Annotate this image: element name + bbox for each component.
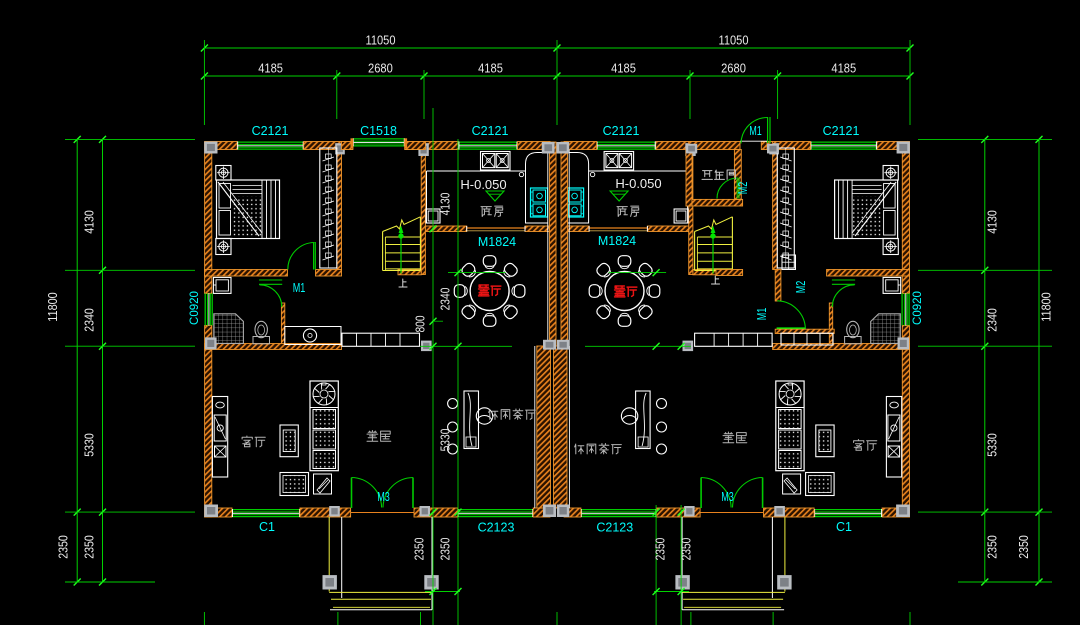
- svg-text:C1: C1: [836, 520, 852, 534]
- svg-text:2340: 2340: [985, 308, 1000, 332]
- svg-text:C2123: C2123: [596, 521, 633, 535]
- svg-text:C2121: C2121: [472, 124, 509, 138]
- svg-text:2350: 2350: [680, 538, 694, 561]
- svg-text:4185: 4185: [611, 61, 636, 76]
- svg-text:M1: M1: [749, 124, 762, 138]
- svg-text:4130: 4130: [985, 210, 1000, 234]
- svg-text:C2121: C2121: [252, 124, 289, 138]
- svg-text:M1: M1: [293, 281, 306, 295]
- svg-text:2680: 2680: [721, 61, 746, 76]
- svg-text:2350: 2350: [56, 535, 71, 559]
- svg-text:H-0.050: H-0.050: [615, 176, 661, 191]
- svg-text:M2: M2: [736, 182, 750, 195]
- svg-text:M1824: M1824: [478, 235, 516, 249]
- svg-text:11050: 11050: [719, 33, 749, 48]
- svg-text:C2123: C2123: [478, 521, 515, 535]
- svg-text:2350: 2350: [654, 538, 668, 561]
- svg-text:2350: 2350: [1016, 535, 1031, 559]
- svg-text:M3: M3: [377, 490, 390, 504]
- svg-text:C2121: C2121: [823, 124, 860, 138]
- svg-text:4130: 4130: [439, 193, 453, 216]
- svg-text:800: 800: [414, 315, 428, 332]
- svg-text:5330: 5330: [82, 433, 97, 457]
- svg-text:2350: 2350: [82, 535, 97, 559]
- svg-text:5330: 5330: [439, 429, 453, 452]
- svg-text:2340: 2340: [82, 308, 97, 332]
- svg-text:11800: 11800: [45, 292, 60, 322]
- svg-text:11050: 11050: [366, 33, 396, 48]
- svg-text:4130: 4130: [82, 210, 97, 234]
- svg-text:M3: M3: [721, 490, 734, 504]
- svg-text:4185: 4185: [258, 61, 283, 76]
- svg-text:2350: 2350: [985, 535, 1000, 559]
- svg-text:M1824: M1824: [598, 234, 636, 248]
- svg-text:C1518: C1518: [360, 124, 397, 138]
- svg-text:C0920: C0920: [189, 291, 201, 325]
- svg-text:M2: M2: [794, 281, 808, 294]
- svg-text:2680: 2680: [368, 61, 393, 76]
- svg-text:11800: 11800: [1039, 292, 1054, 322]
- svg-text:C2121: C2121: [603, 124, 640, 138]
- svg-text:2350: 2350: [413, 538, 427, 561]
- svg-text:H-0.050: H-0.050: [460, 177, 506, 192]
- svg-text:2350: 2350: [439, 538, 453, 561]
- svg-text:4185: 4185: [831, 61, 856, 76]
- svg-text:4185: 4185: [478, 61, 503, 76]
- svg-text:2340: 2340: [439, 288, 453, 311]
- svg-text:5330: 5330: [985, 433, 1000, 457]
- svg-text:C0920: C0920: [912, 291, 924, 325]
- svg-text:M1: M1: [755, 308, 769, 321]
- svg-text:C1: C1: [259, 520, 275, 534]
